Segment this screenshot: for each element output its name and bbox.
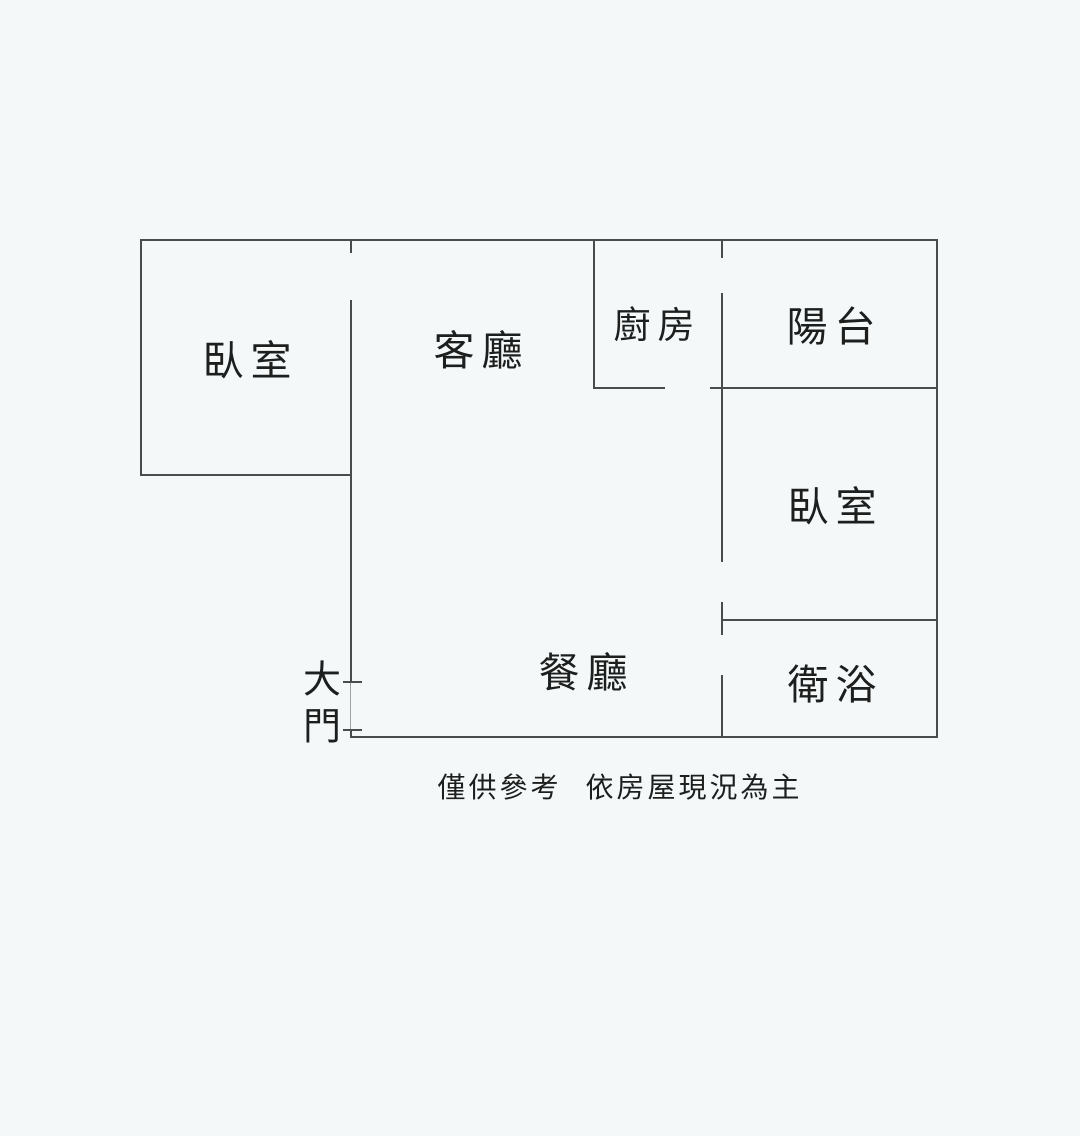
wall-divider-lower bbox=[721, 675, 723, 737]
room-label-bathroom: 衛浴 bbox=[781, 651, 884, 711]
entrance-char-2: 門 bbox=[303, 708, 341, 746]
floor-plan: 臥室 客廳 廚房 陽台 臥室 餐廳 衛浴 大 門 僅供參考 依房屋現況為主 bbox=[0, 0, 1080, 1136]
room-label-living-room: 客廳 bbox=[427, 317, 530, 377]
room-label-bedroom-right: 臥室 bbox=[781, 473, 884, 533]
wall-left-main bbox=[350, 300, 352, 681]
wall-top bbox=[140, 239, 938, 241]
wall-bedroom-left-bottom bbox=[140, 474, 352, 476]
entry-door-tick-lower bbox=[343, 729, 362, 731]
room-label-dining-room: 餐廳 bbox=[532, 639, 635, 699]
wall-bottom bbox=[350, 736, 938, 738]
wall-bedroom-left-outer bbox=[140, 239, 142, 476]
room-label-kitchen: 廚房 bbox=[607, 295, 702, 349]
wall-kitchen-left bbox=[593, 239, 595, 389]
wall-kitchen-bottom bbox=[593, 387, 665, 389]
room-label-bedroom-left: 臥室 bbox=[196, 327, 299, 387]
disclaimer-caption: 僅供參考 依房屋現況為主 bbox=[438, 766, 803, 806]
entry-door-tick-upper bbox=[343, 681, 362, 683]
entry-door-opening bbox=[350, 681, 351, 730]
room-label-balcony: 陽台 bbox=[780, 293, 883, 353]
wall-divider-tick-top bbox=[721, 239, 723, 258]
wall-bathroom-top bbox=[722, 619, 938, 621]
wall-left-tick-top bbox=[350, 239, 352, 253]
wall-right bbox=[936, 239, 938, 738]
entrance-char-1: 大 bbox=[303, 661, 341, 699]
entrance-label: 大 門 bbox=[303, 661, 341, 746]
wall-divider-upper bbox=[721, 293, 723, 562]
wall-balcony-bottom bbox=[710, 387, 938, 389]
